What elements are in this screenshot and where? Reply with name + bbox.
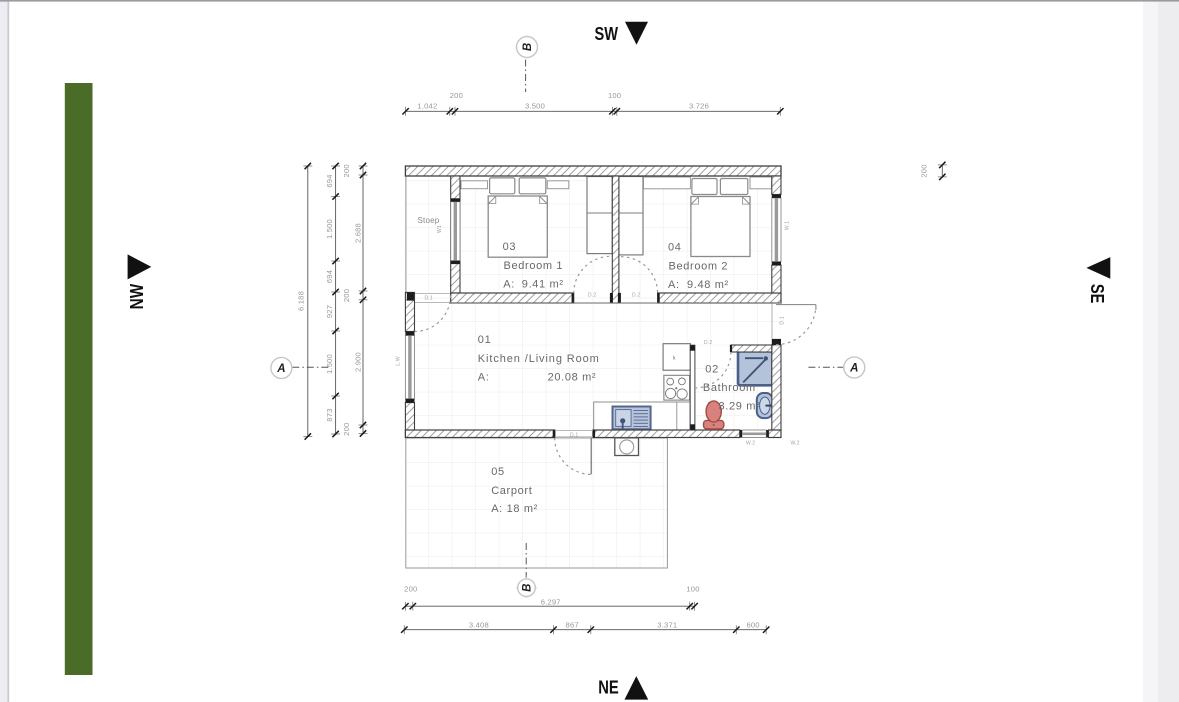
svg-text:927: 927 bbox=[325, 305, 334, 318]
svg-text:B: B bbox=[522, 43, 534, 51]
svg-text:NW: NW bbox=[126, 283, 147, 309]
svg-text:02: 02 bbox=[705, 364, 719, 376]
svg-text:D.2: D.2 bbox=[588, 293, 596, 299]
svg-text:D.1: D.1 bbox=[425, 296, 433, 302]
svg-text:D.1: D.1 bbox=[570, 432, 578, 438]
svg-text:D.2: D.2 bbox=[704, 340, 712, 346]
svg-text:05: 05 bbox=[491, 466, 505, 478]
svg-text:L.W: L.W bbox=[396, 356, 402, 366]
svg-text:3.408: 3.408 bbox=[469, 621, 489, 630]
svg-text:694: 694 bbox=[325, 174, 334, 187]
svg-text:Bathroom: Bathroom bbox=[703, 382, 756, 394]
svg-text:873: 873 bbox=[325, 408, 334, 421]
svg-text:200: 200 bbox=[450, 91, 463, 100]
svg-text:A:: A: bbox=[668, 279, 680, 291]
svg-text:W.2: W.2 bbox=[791, 441, 800, 447]
svg-text:200: 200 bbox=[919, 164, 928, 177]
svg-text:600: 600 bbox=[746, 621, 759, 630]
svg-text:1.042: 1.042 bbox=[417, 101, 437, 110]
svg-text:03: 03 bbox=[503, 241, 517, 253]
svg-text:200: 200 bbox=[342, 423, 351, 436]
svg-text:100: 100 bbox=[686, 585, 699, 594]
svg-text:2.688: 2.688 bbox=[353, 223, 362, 243]
svg-text:Stoep: Stoep bbox=[418, 216, 440, 225]
svg-text:D.1: D.1 bbox=[779, 316, 785, 324]
svg-text:3.371: 3.371 bbox=[657, 621, 677, 630]
svg-text:100: 100 bbox=[608, 91, 621, 100]
svg-text:200: 200 bbox=[342, 289, 351, 302]
svg-text:3.726: 3.726 bbox=[689, 101, 709, 110]
svg-text:NE: NE bbox=[598, 676, 619, 697]
svg-text:D.2: D.2 bbox=[632, 293, 640, 299]
svg-text:200: 200 bbox=[404, 585, 417, 594]
svg-text:867: 867 bbox=[566, 621, 579, 630]
svg-text:6.188: 6.188 bbox=[296, 291, 305, 311]
svg-text:3.500: 3.500 bbox=[525, 101, 545, 110]
svg-text:A: 18 m²: A: 18 m² bbox=[491, 503, 538, 515]
svg-text:694: 694 bbox=[325, 270, 334, 283]
svg-text:04: 04 bbox=[668, 242, 682, 254]
svg-text:3.29 m²: 3.29 m² bbox=[719, 401, 761, 413]
svg-text:A:: A: bbox=[478, 372, 490, 384]
svg-text:1.500: 1.500 bbox=[325, 354, 334, 374]
svg-text:9.48 m²: 9.48 m² bbox=[687, 279, 729, 291]
svg-text:SW: SW bbox=[595, 23, 619, 44]
svg-text:A:: A: bbox=[503, 279, 515, 291]
svg-text:Bedroom 1: Bedroom 1 bbox=[504, 260, 564, 272]
svg-text:9.41 m²: 9.41 m² bbox=[522, 279, 564, 291]
svg-text:Bedroom 2: Bedroom 2 bbox=[669, 261, 729, 273]
svg-text:W.2: W.2 bbox=[746, 441, 755, 447]
svg-text:Carport: Carport bbox=[491, 485, 532, 497]
svg-text:2.900: 2.900 bbox=[353, 352, 362, 372]
svg-text:20.08 m²: 20.08 m² bbox=[548, 372, 597, 384]
svg-text:W.1: W.1 bbox=[785, 221, 791, 230]
svg-text:A: A bbox=[849, 362, 858, 374]
svg-text:W1: W1 bbox=[437, 225, 443, 233]
svg-text:6.297: 6.297 bbox=[541, 597, 561, 606]
svg-text:SE: SE bbox=[1087, 284, 1108, 304]
svg-text:1.500: 1.500 bbox=[325, 219, 334, 239]
svg-text:200: 200 bbox=[342, 164, 351, 177]
svg-text:Kitchen /Living Room: Kitchen /Living Room bbox=[478, 353, 600, 365]
svg-text:01: 01 bbox=[478, 334, 492, 346]
svg-text:A: A bbox=[276, 363, 285, 375]
svg-text:B: B bbox=[522, 584, 534, 592]
